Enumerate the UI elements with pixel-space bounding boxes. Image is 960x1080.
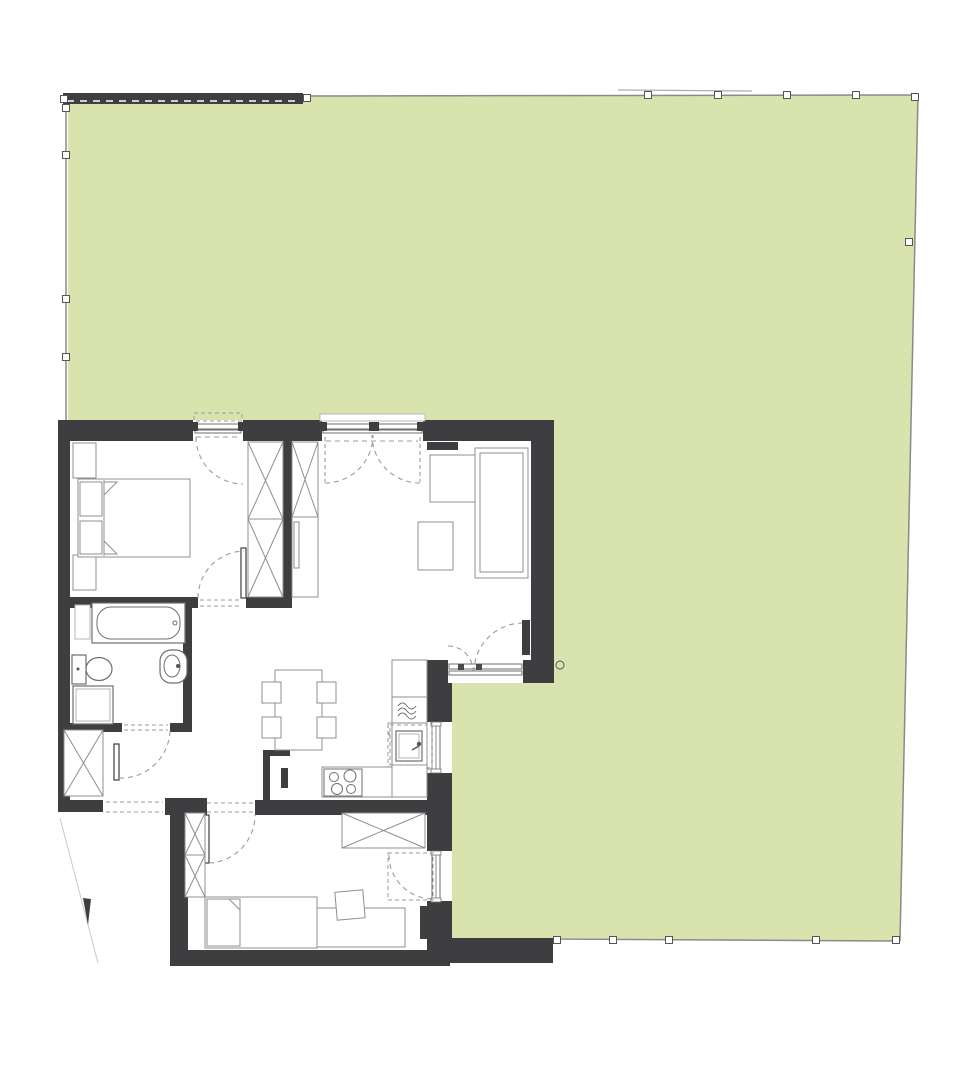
door-bathroom-arc [119,727,170,778]
frenchdoor-terrace-sill-b [449,671,522,675]
bed-pillow-top [80,482,102,516]
retaining-wall-bar [63,93,303,104]
shower-unit [73,686,113,724]
wall-top-mid [243,420,322,441]
frenchdoor-garden-jamb-right [417,422,423,431]
window-bedroom2-arc [389,855,433,899]
wardrobe-bedroom2-top [342,813,425,848]
window-bedroom-sill-outer [195,424,241,429]
radiator-living [522,620,530,655]
plot-boundary-diagonal [60,818,98,963]
chair-a [262,682,281,703]
dining-table [275,670,322,750]
frenchdoor-garden-post-b [374,422,379,431]
wardrobe-bedroom-lower [248,519,283,597]
nightstand-lower [73,555,96,590]
bed-pillow-bottom [80,521,102,554]
frenchdoor-garden-outer-sill [320,414,425,421]
chair-b [262,717,281,738]
window-kitchen-cap-bottom [431,769,441,773]
door-bedroom-leaf [241,548,246,598]
window-bedroom-jamb-right [238,422,243,431]
bathtub-shelf [75,605,90,639]
toilet-flush-dot [77,668,80,671]
wall-living-right [531,420,554,683]
wall-bedroom-bottom-right [246,597,292,608]
kitchen-counter-right [392,660,427,797]
door-bedroom2-arc [209,815,255,863]
floor-plan [0,0,960,1080]
door-bedroom-arc [198,551,244,598]
wall-top-left [58,420,193,441]
sofa-body [475,448,528,578]
wall-niche-left [263,750,270,800]
wall-living-bottom-right [523,660,554,683]
chair-c [317,682,336,703]
window-bedroom-swing-arc [196,437,243,484]
radiator-bedroom2 [420,906,427,939]
frenchdoor-garden-jamb-left [321,422,327,431]
wall-entry-left [58,800,103,812]
frenchdoor-terrace-handle-a [458,664,464,670]
sofa-chaise [430,455,477,502]
washbasin-tap-dot [176,664,180,668]
wall-niche-stub [281,768,288,788]
toilet-bowl [86,658,112,681]
wall-living-bottom-left [428,660,448,683]
frenchdoor-garden-post-a [369,422,374,431]
window-bedroom-jamb-left [193,422,198,431]
wall-bedroom-divider [283,440,292,608]
tv-board [427,442,458,450]
fence-top-offset [618,90,752,91]
frenchdoor-terrace-handle-b [476,664,482,670]
door-bathroom-leaf [114,744,119,780]
nightstand-upper [73,443,96,478]
wardrobe-living-rail [294,522,299,568]
wardrobe-hall [64,730,103,796]
hob [324,769,362,796]
wardrobe-bedroom-upper [248,442,283,519]
fence-top [305,95,918,96]
kitchen-tap-dot [417,742,421,746]
wall-kitchen-right-lower [427,773,452,851]
floor-plan-canvas [0,0,960,1080]
stool [335,890,365,920]
wall-bedroom2-bottom [170,950,450,966]
coffee-table [418,522,453,570]
bed-single-pillow [207,899,240,946]
wall-bathroom-bottom-right [170,723,192,732]
wardrobe-living-x [292,442,318,517]
frenchdoor-garden-right-arc [372,435,420,483]
wardrobe-bedroom2-left-upper [185,813,205,855]
wall-footing-block [427,938,553,963]
wardrobe-bedroom2-left-lower [185,855,205,897]
chair-d [317,717,336,738]
frenchdoor-garden-left-arc [325,435,373,483]
window-bedroom-sill-inner [195,430,241,433]
bathtub [92,603,185,643]
